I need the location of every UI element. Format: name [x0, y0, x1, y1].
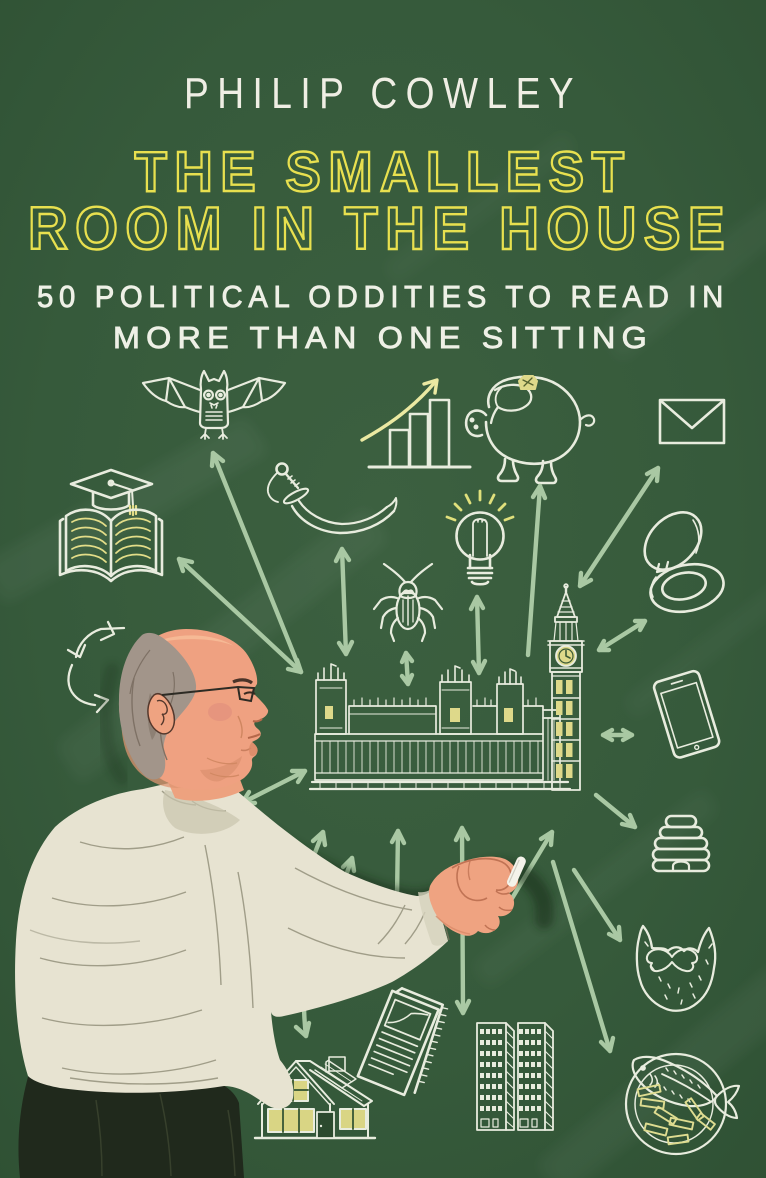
- svg-text:PHILIP COWLEY: PHILIP COWLEY: [184, 69, 582, 118]
- svg-text:50 POLITICAL ODDITIES TO READ: 50 POLITICAL ODDITIES TO READ IN: [37, 279, 729, 314]
- svg-text:MORE THAN ONE SITTING: MORE THAN ONE SITTING: [113, 320, 653, 355]
- svg-text:ROOM IN THE HOUSE: ROOM IN THE HOUSE: [28, 195, 732, 262]
